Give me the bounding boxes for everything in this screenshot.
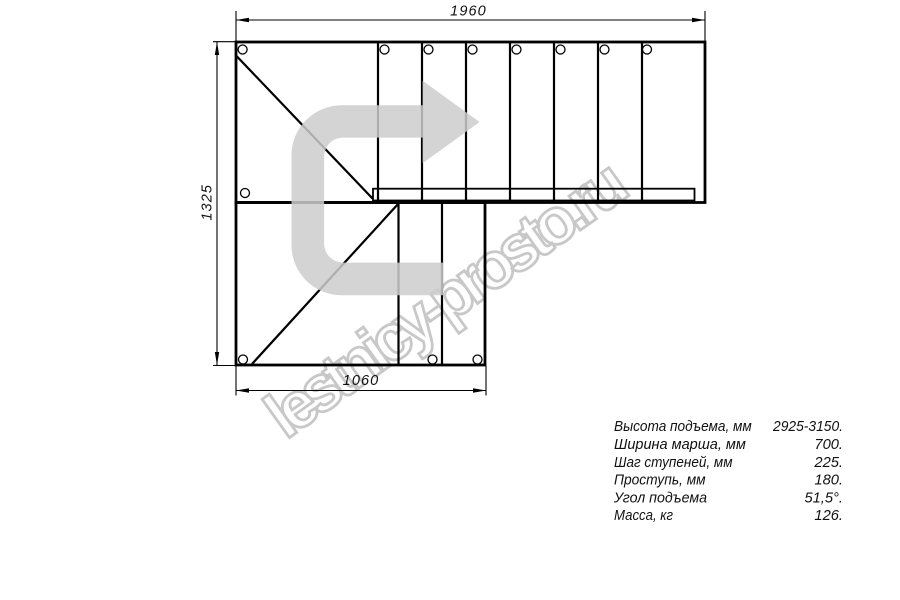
svg-text:1325: 1325 <box>199 184 215 221</box>
svg-text:700.: 700. <box>814 437 843 453</box>
svg-text:Высота подъема, мм: Высота подъема, мм <box>614 419 752 435</box>
svg-text:1060: 1060 <box>343 373 380 389</box>
svg-text:Угол подъема: Угол подъема <box>613 490 707 506</box>
svg-text:51,5°.: 51,5°. <box>804 490 843 506</box>
svg-text:Ширина марша, мм: Ширина марша, мм <box>614 437 746 453</box>
svg-text:126.: 126. <box>814 508 843 524</box>
svg-text:2925-3150.: 2925-3150. <box>772 419 843 435</box>
svg-text:180.: 180. <box>814 473 843 489</box>
svg-text:Шаг ступеней, мм: Шаг ступеней, мм <box>614 455 733 471</box>
svg-text:Масса, кг: Масса, кг <box>614 508 673 524</box>
svg-text:1960: 1960 <box>450 4 487 20</box>
svg-text:225.: 225. <box>813 455 843 471</box>
svg-text:Проступь, мм: Проступь, мм <box>614 473 706 489</box>
